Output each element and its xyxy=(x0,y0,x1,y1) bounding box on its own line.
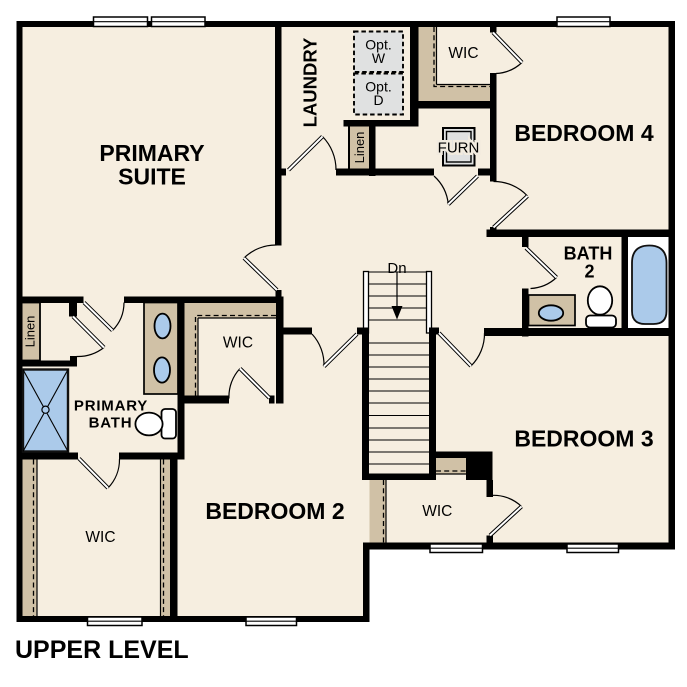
svg-text:SUITE: SUITE xyxy=(118,164,186,190)
svg-text:LAUNDRY: LAUNDRY xyxy=(300,37,321,127)
svg-text:PRIMARY: PRIMARY xyxy=(74,398,148,415)
svg-text:FURN: FURN xyxy=(438,140,480,157)
svg-text:UPPER LEVEL: UPPER LEVEL xyxy=(15,636,189,664)
svg-text:2: 2 xyxy=(584,262,594,282)
svg-text:BATH: BATH xyxy=(89,415,133,432)
svg-text:WIC: WIC xyxy=(422,503,452,520)
svg-text:WIC: WIC xyxy=(85,529,115,546)
svg-text:BEDROOM 4: BEDROOM 4 xyxy=(514,120,654,146)
svg-text:WIC: WIC xyxy=(223,335,253,352)
svg-text:Linen: Linen xyxy=(23,316,38,348)
svg-text:Linen: Linen xyxy=(352,132,367,164)
svg-text:Dn: Dn xyxy=(387,260,406,277)
svg-text:BEDROOM 3: BEDROOM 3 xyxy=(514,426,653,452)
svg-text:W: W xyxy=(372,50,386,66)
svg-text:BEDROOM 2: BEDROOM 2 xyxy=(205,498,344,524)
svg-text:WIC: WIC xyxy=(448,45,478,62)
svg-text:BATH: BATH xyxy=(564,244,613,264)
svg-text:PRIMARY: PRIMARY xyxy=(99,140,204,166)
svg-text:D: D xyxy=(373,92,383,108)
